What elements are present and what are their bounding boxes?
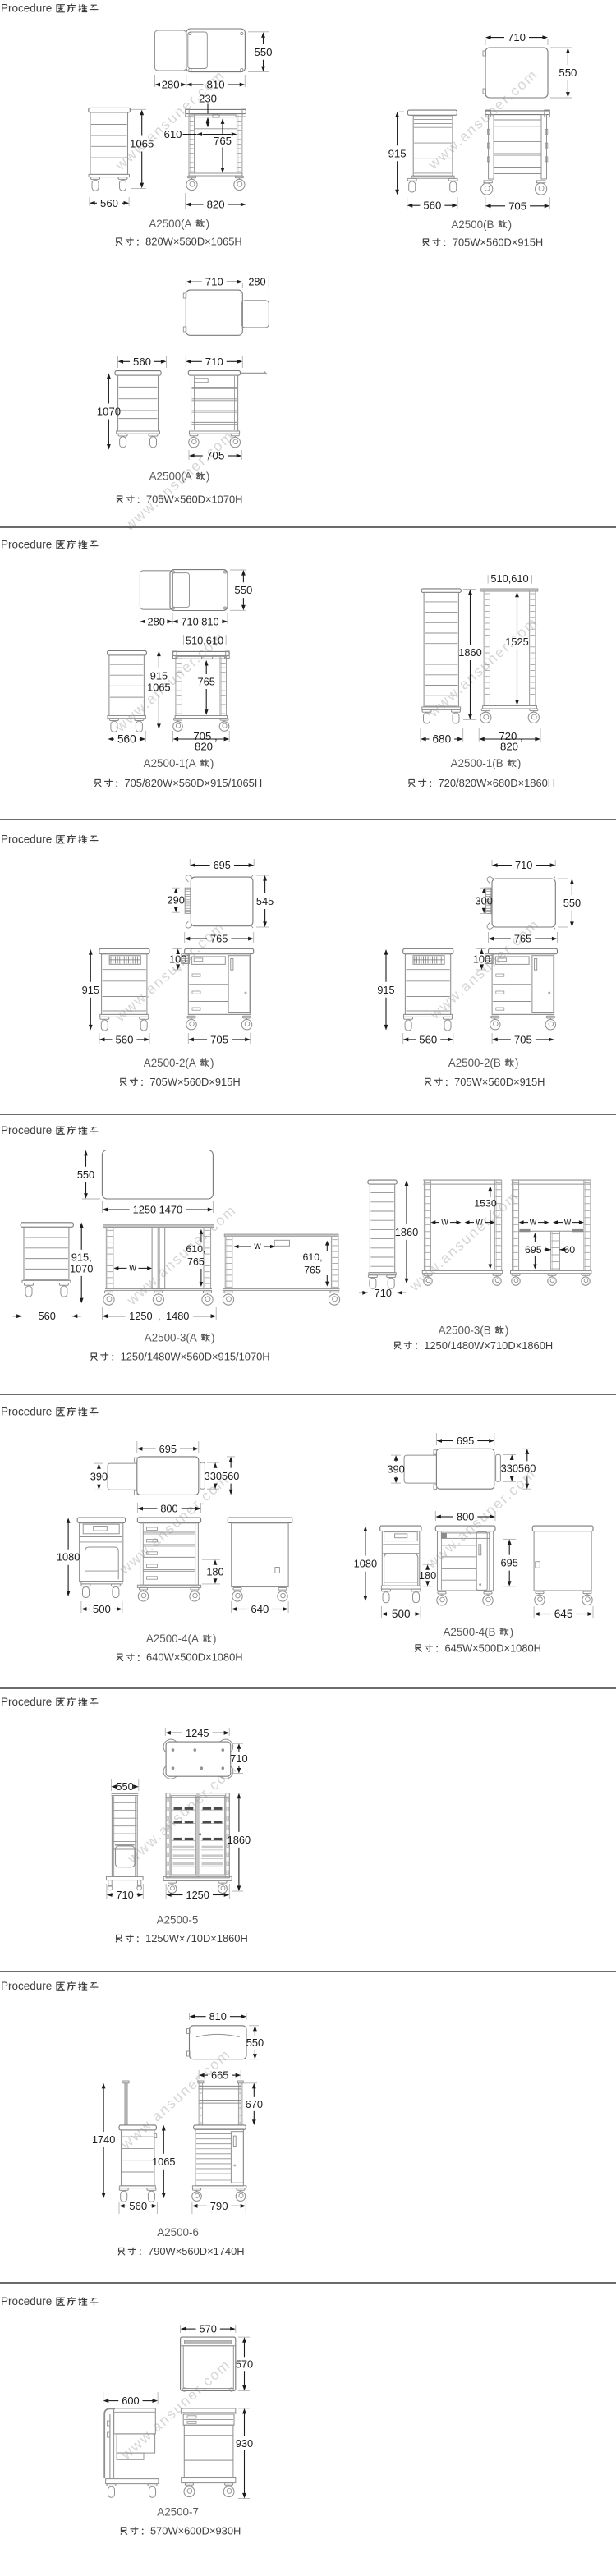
svg-text:): ) <box>505 1325 508 1337</box>
svg-text:765: 765 <box>198 676 215 688</box>
svg-text:500: 500 <box>93 1603 111 1615</box>
svg-text:710: 710 <box>205 276 223 288</box>
svg-text:670: 670 <box>246 2098 263 2110</box>
svg-text:550: 550 <box>77 1169 94 1181</box>
svg-text:): ) <box>206 218 209 230</box>
svg-text:570: 570 <box>200 2323 217 2335</box>
svg-text:810: 810 <box>207 79 225 91</box>
svg-text:560: 560 <box>117 733 136 746</box>
svg-text:790: 790 <box>210 2200 228 2212</box>
svg-text:w: w <box>475 1218 483 1228</box>
svg-text:705W×560D×915H: 705W×560D×915H <box>149 1076 240 1088</box>
svg-text:820W×560D×1065H: 820W×560D×1065H <box>145 236 242 248</box>
svg-text:610: 610 <box>163 128 182 140</box>
svg-text:1250/1480W×560D×915/1070H: 1250/1480W×560D×915/1070H <box>121 1351 270 1363</box>
svg-text:w: w <box>563 1218 572 1228</box>
svg-text:Procedure: Procedure <box>1 539 52 551</box>
svg-text:550: 550 <box>234 584 252 596</box>
svg-text:A2500-7: A2500-7 <box>157 2506 199 2519</box>
svg-text:Procedure: Procedure <box>1 1406 52 1418</box>
svg-text:): ) <box>515 1057 518 1069</box>
svg-text:1065: 1065 <box>130 138 154 150</box>
svg-text:1080: 1080 <box>354 1558 377 1570</box>
svg-text:550: 550 <box>246 2036 264 2049</box>
svg-text:560: 560 <box>39 1310 56 1322</box>
svg-text:): ) <box>508 218 512 231</box>
svg-text:600: 600 <box>122 2395 139 2407</box>
svg-text:): ) <box>510 1626 513 1638</box>
svg-text:w: w <box>440 1218 448 1228</box>
svg-text:550: 550 <box>559 67 577 79</box>
svg-text:230: 230 <box>199 93 217 105</box>
svg-text:1250W×710D×1860H: 1250W×710D×1860H <box>145 1932 248 1945</box>
svg-text:570W×600D×930H: 570W×600D×930H <box>150 2524 241 2537</box>
svg-text:60: 60 <box>563 1244 575 1256</box>
svg-text:A2500-3(B: A2500-3(B <box>439 1325 491 1337</box>
svg-text:1065: 1065 <box>147 682 170 694</box>
svg-text:710 810: 710 810 <box>181 615 218 627</box>
svg-text:570: 570 <box>236 2358 253 2370</box>
svg-text:645W×500D×1080H: 645W×500D×1080H <box>444 1642 541 1654</box>
svg-text:www.ansuner.com: www.ansuner.com <box>406 1187 522 1295</box>
svg-text:290: 290 <box>168 894 185 907</box>
svg-text:www.ansuner.com: www.ansuner.com <box>425 613 541 721</box>
svg-text:710: 710 <box>230 1752 247 1765</box>
svg-text:A2500-2(A: A2500-2(A <box>144 1057 196 1069</box>
svg-text:Procedure: Procedure <box>1 1124 52 1136</box>
svg-text:705: 705 <box>514 1033 532 1045</box>
svg-text:765: 765 <box>304 1264 321 1275</box>
svg-text:610,: 610, <box>186 1243 205 1255</box>
svg-text:330560: 330560 <box>501 1462 536 1474</box>
svg-text:180: 180 <box>206 1566 223 1578</box>
svg-text:A2500-3(A: A2500-3(A <box>145 1332 197 1344</box>
svg-text:): ) <box>213 1632 216 1645</box>
svg-text:680: 680 <box>433 733 452 746</box>
svg-text:1740: 1740 <box>92 2133 115 2146</box>
svg-text:915: 915 <box>377 984 394 996</box>
svg-text:A2500(A: A2500(A <box>149 471 192 483</box>
svg-text:640W×500D×1080H: 640W×500D×1080H <box>146 1651 243 1664</box>
svg-text:w: w <box>253 1242 261 1251</box>
svg-text:765: 765 <box>514 933 531 945</box>
svg-text:550: 550 <box>116 1780 133 1793</box>
svg-text:Procedure: Procedure <box>1 1980 52 1992</box>
svg-text:A2500-6: A2500-6 <box>157 2226 199 2239</box>
svg-text:710: 710 <box>508 31 526 44</box>
svg-text:): ) <box>206 471 209 483</box>
svg-text:A2500-1(A: A2500-1(A <box>144 757 196 769</box>
svg-text:915: 915 <box>388 147 407 159</box>
svg-text:Procedure: Procedure <box>1 2295 52 2307</box>
svg-text:915: 915 <box>82 984 99 996</box>
svg-text:705W×560D×1070H: 705W×560D×1070H <box>146 494 243 506</box>
svg-text:): ) <box>210 1057 214 1069</box>
svg-text:A2500(A: A2500(A <box>149 218 191 230</box>
svg-text:695: 695 <box>525 1244 542 1256</box>
svg-text:1080: 1080 <box>57 1551 80 1564</box>
svg-text:705: 705 <box>508 200 526 212</box>
svg-text:695: 695 <box>159 1443 177 1455</box>
svg-text:765: 765 <box>187 1256 205 1267</box>
svg-text:640: 640 <box>251 1603 269 1615</box>
svg-text:1860: 1860 <box>228 1834 251 1846</box>
svg-text:www.ansuner.com: www.ansuner.com <box>117 2356 234 2464</box>
svg-text:800: 800 <box>457 1511 474 1523</box>
svg-text:820: 820 <box>195 741 213 753</box>
svg-text:550: 550 <box>254 46 272 58</box>
svg-text:w: w <box>129 1263 137 1273</box>
svg-text:720/820W×680D×1860H: 720/820W×680D×1860H <box>439 777 556 789</box>
svg-text:Procedure: Procedure <box>1 2 52 15</box>
svg-text:1250 , 1480: 1250 , 1480 <box>129 1310 189 1322</box>
svg-text:www.ansuner.com: www.ansuner.com <box>123 1201 240 1309</box>
svg-text:A2500-5: A2500-5 <box>157 1913 199 1926</box>
svg-text:510,610: 510,610 <box>186 635 223 647</box>
svg-text:820: 820 <box>500 741 518 753</box>
svg-text:765: 765 <box>214 135 232 147</box>
svg-text:390: 390 <box>387 1463 404 1476</box>
svg-text:765: 765 <box>210 933 228 945</box>
svg-text:560: 560 <box>423 200 441 212</box>
svg-text:790W×560D×1740H: 790W×560D×1740H <box>148 2245 245 2257</box>
svg-text:1530: 1530 <box>474 1198 497 1210</box>
svg-text:710: 710 <box>515 859 532 871</box>
svg-text:100: 100 <box>169 953 186 966</box>
svg-text:810: 810 <box>209 2010 227 2023</box>
svg-text:695: 695 <box>214 859 231 871</box>
svg-text:100: 100 <box>473 953 490 966</box>
svg-text:1860: 1860 <box>395 1226 418 1238</box>
svg-text:545: 545 <box>256 895 274 907</box>
svg-text:705: 705 <box>206 450 225 462</box>
svg-text:1250 1470: 1250 1470 <box>133 1204 183 1216</box>
svg-text:560: 560 <box>419 1033 437 1045</box>
svg-text:300: 300 <box>476 894 493 907</box>
svg-text:Procedure: Procedure <box>1 833 52 846</box>
svg-text:610,: 610, <box>302 1251 322 1263</box>
svg-text:Procedure: Procedure <box>1 1696 52 1708</box>
svg-text:800: 800 <box>160 1503 177 1515</box>
svg-text:A2500-1(B: A2500-1(B <box>451 757 503 769</box>
svg-text:1525: 1525 <box>505 636 528 648</box>
svg-text:A2500-2(B: A2500-2(B <box>448 1057 501 1069</box>
svg-text:705W×560D×915H: 705W×560D×915H <box>454 1076 545 1088</box>
svg-text:550: 550 <box>563 897 581 909</box>
svg-text:560: 560 <box>115 1033 133 1045</box>
svg-text:510,610: 510,610 <box>490 572 528 585</box>
svg-text:665: 665 <box>211 2069 228 2082</box>
svg-text:390: 390 <box>90 1471 108 1483</box>
svg-text:A2500-4(A: A2500-4(A <box>146 1632 199 1645</box>
svg-text:560: 560 <box>133 356 151 368</box>
svg-text:280: 280 <box>162 79 180 91</box>
svg-text:): ) <box>210 757 214 769</box>
svg-text:710: 710 <box>375 1287 392 1299</box>
svg-text:560: 560 <box>129 2200 147 2212</box>
svg-text:705/820W×560D×915/1065H: 705/820W×560D×915/1065H <box>124 777 262 789</box>
svg-text:): ) <box>517 757 521 769</box>
svg-text:280: 280 <box>248 276 265 288</box>
svg-text:180: 180 <box>419 1569 436 1582</box>
svg-text:560: 560 <box>100 197 118 209</box>
svg-text:A2500(B: A2500(B <box>451 218 494 231</box>
svg-text:1070: 1070 <box>97 406 121 418</box>
svg-text:915: 915 <box>150 670 168 682</box>
svg-text:1250/1480W×710D×1860H: 1250/1480W×710D×1860H <box>424 1339 553 1352</box>
svg-text:1245: 1245 <box>186 1727 209 1739</box>
svg-text:705W×560D×915H: 705W×560D×915H <box>453 236 543 249</box>
svg-text:1070: 1070 <box>70 1262 93 1274</box>
svg-text:705: 705 <box>210 1033 228 1045</box>
svg-text:710: 710 <box>116 1889 133 1901</box>
svg-text:): ) <box>211 1332 214 1344</box>
svg-text:1860: 1860 <box>458 646 481 659</box>
svg-text:1065: 1065 <box>152 2156 175 2168</box>
svg-text:w: w <box>529 1218 537 1228</box>
svg-text:710: 710 <box>205 356 223 368</box>
svg-text:645: 645 <box>554 1608 573 1620</box>
svg-text:915,: 915, <box>71 1251 92 1263</box>
svg-text:A2500-4(B: A2500-4(B <box>443 1626 495 1638</box>
svg-text:695: 695 <box>501 1557 518 1569</box>
svg-text:500: 500 <box>392 1608 411 1620</box>
svg-text:280: 280 <box>148 615 165 627</box>
svg-text:695: 695 <box>457 1435 474 1447</box>
svg-text:330560: 330560 <box>205 1470 240 1482</box>
svg-text:820: 820 <box>207 199 225 211</box>
svg-text:930: 930 <box>236 2437 253 2450</box>
svg-text:1250: 1250 <box>186 1889 209 1901</box>
